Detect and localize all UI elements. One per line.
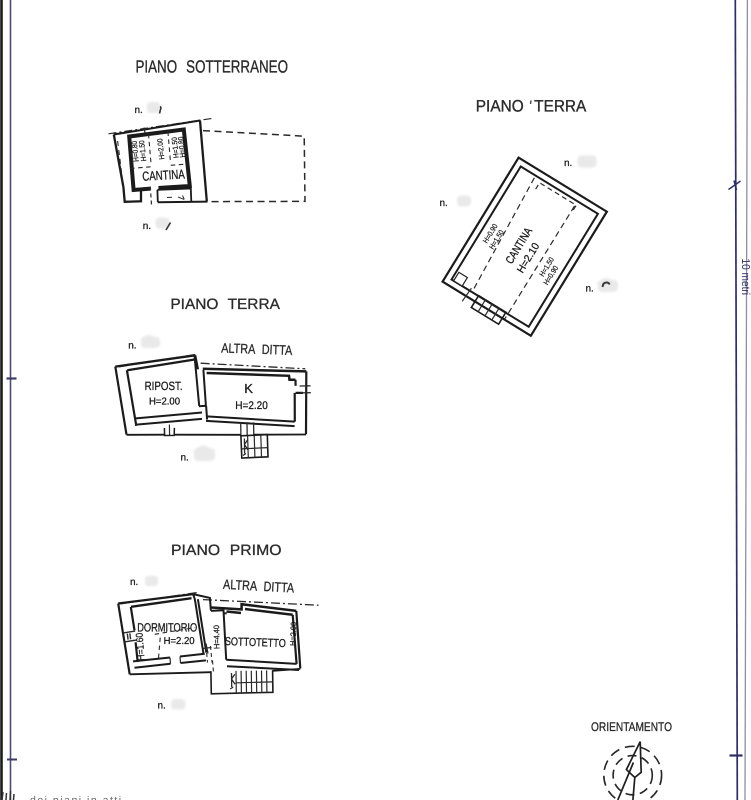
svg-text:CANTINA: CANTINA	[142, 166, 185, 183]
svg-text:dei piani in atti: dei piani in atti	[30, 795, 123, 800]
svg-text:10 metri: 10 metri	[739, 259, 751, 296]
svg-text:H=2.00: H=2.00	[289, 621, 299, 646]
svg-text:PIANO TERRA: PIANO TERRA	[476, 98, 587, 116]
svg-text:n.: n.	[143, 221, 151, 232]
svg-text:H=4.40: H=4.40	[212, 624, 221, 649]
svg-text:n.: n.	[181, 453, 189, 464]
svg-text:PIANO SOTTERRANEO: PIANO SOTTERRANEO	[136, 57, 289, 77]
svg-text:DORMITORIO: DORMITORIO	[137, 621, 197, 635]
svg-text:n.: n.	[440, 198, 448, 209]
svg-text:H=1.60: H=1.60	[135, 632, 148, 661]
svg-text:H=2.20: H=2.20	[164, 636, 195, 647]
svg-text:PIANO PRIMO: PIANO PRIMO	[171, 542, 282, 559]
svg-text:n.: n.	[135, 105, 143, 116]
svg-text:ALTRA DITTA: ALTRA DITTA	[221, 341, 292, 358]
svg-text:H=2.00: H=2.00	[149, 396, 180, 407]
svg-text:n.: n.	[564, 158, 572, 169]
svg-text:H=2.20: H=2.20	[235, 400, 267, 412]
svg-text:SOTTOTETTO: SOTTOTETTO	[225, 636, 286, 650]
svg-text:n.: n.	[130, 577, 138, 588]
svg-text:RIPOST.: RIPOST.	[145, 379, 183, 393]
svg-text:ORIENTAMENTO: ORIENTAMENTO	[591, 720, 672, 734]
svg-text:PIANO TERRA: PIANO TERRA	[170, 296, 280, 313]
svg-text:K: K	[244, 381, 253, 396]
svg-text:n.: n.	[158, 701, 166, 712]
svg-text:n.: n.	[128, 341, 136, 352]
svg-text:n.: n.	[586, 284, 594, 295]
